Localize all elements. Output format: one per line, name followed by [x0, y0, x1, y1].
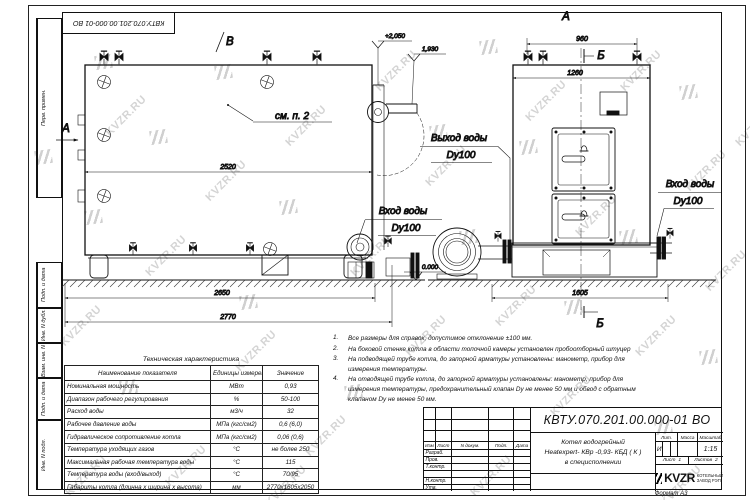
format-value: А3 — [680, 491, 687, 497]
row-label-razrab: Разраб. — [424, 450, 452, 456]
kvzr-logo-icon — [656, 473, 662, 484]
table-row: Диапазон рабочего регулирования%50-100 — [65, 393, 319, 406]
col-header-podp: Подп. — [489, 442, 514, 449]
row-unit: °С — [211, 456, 263, 469]
note-number: 4. — [333, 375, 348, 404]
table-row: Расход водым3/ч32 — [65, 406, 319, 419]
company-name-line2: ЗАВОД РЭП — [697, 478, 721, 483]
company-name-line1: КОТЕЛЬНЫЙ — [697, 473, 723, 478]
product-name-line3: в специсполнении — [565, 458, 622, 468]
tech-table-title: Техническая характеристика — [64, 356, 318, 363]
row-label-blank — [424, 471, 452, 477]
row-value: 70/95 — [263, 469, 319, 482]
title-block-empty-cell — [531, 473, 656, 491]
corner-stamp: КВТУ.070.201.00.000-01 ВО — [62, 12, 175, 34]
row-name: Габариты котла (длинна х ширина х высота… — [65, 481, 211, 494]
title-block-doc-number: КВТУ.070.201.00.000-01 ВО — [531, 408, 723, 433]
row-unit: м3/ч — [211, 406, 263, 419]
row-value: не более 250 — [263, 443, 319, 456]
row-value: 50-100 — [263, 393, 319, 406]
row-value: 2770х1605х2050 — [263, 481, 319, 494]
row-unit: мм — [211, 481, 263, 494]
sheet-value: 1 — [678, 458, 681, 463]
margin-box-podp-data-2: Подп. и дата — [36, 378, 62, 420]
sheets-value: 2 — [715, 458, 718, 463]
company-name: КОТЕЛЬНЫЙ ЗАВОД РЭП — [697, 473, 723, 484]
margin-label-perv-primen: Перв. примен. — [37, 19, 50, 197]
product-name-line2: Heatexpert- КВр -0,93- КБД ( К ) — [545, 448, 642, 458]
margin-box-vzam-inv: Взам. инв. N — [36, 343, 62, 378]
product-name: Котел водогрейный Heatexpert- КВр -0,93-… — [531, 433, 656, 473]
col-header-docnum: N докум. — [452, 442, 490, 449]
title-block-left: Изм Лист N докум. Подп. Дата Разраб. Про… — [424, 408, 531, 491]
row-name: Диапазон рабочего регулирования — [65, 393, 211, 406]
table-row: Гидравлическое сопротивление котлаМПа (к… — [65, 431, 319, 444]
row-name: Температура воды (вход/выход) — [65, 469, 211, 482]
notes-list: 1.Все размеры для справок, допустимое от… — [333, 334, 638, 405]
margin-label-vzam-inv: Взам. инв. N — [37, 344, 50, 377]
scale-value: 1:15 — [698, 442, 723, 456]
row-label-prov: Пров. — [424, 457, 452, 463]
sheet-label: Лист — [663, 458, 676, 463]
row-value: 32 — [263, 406, 319, 419]
sheet-info: Лист1 Листов2 — [656, 456, 723, 464]
tech-table: Наименование показателя Единицы измерени… — [64, 365, 319, 494]
row-unit: % — [211, 393, 263, 406]
title-block: Изм Лист N докум. Подп. Дата Разраб. Про… — [423, 407, 722, 490]
note-item: 3.На подводящей трубе котла, до запорной… — [333, 355, 638, 374]
row-unit: °С — [211, 469, 263, 482]
col-header-list: Лист — [436, 442, 452, 449]
lit-value: И — [656, 442, 663, 456]
tech-header-name: Наименование показателя — [65, 366, 211, 381]
margin-box-perv-primen: Перв. примен. — [36, 18, 62, 198]
margin-box-inv-dubl: Инв. N дубл. — [36, 308, 62, 343]
margin-label-inv-podl: Инв. N подл. — [37, 421, 50, 489]
kvzr-logo-text: KVZR — [664, 471, 695, 485]
row-value: 0,06 (0,6) — [263, 431, 319, 444]
row-value: 0,6 (6,0) — [263, 418, 319, 431]
margin-label-podp-data-2: Подп. и дата — [37, 379, 50, 419]
row-name: Гидравлическое сопротивление котла — [65, 431, 211, 444]
row-unit: МПа (кгс/см2) — [211, 431, 263, 444]
row-unit: МВт — [211, 381, 263, 394]
row-label-nkontr: Н.контр. — [424, 478, 452, 484]
note-item: 2.На боковой стенке котла в области топо… — [333, 345, 638, 355]
company-logo: KVZR КОТЕЛЬНЫЙ ЗАВОД РЭП — [656, 464, 723, 491]
row-unit: МПа (кгс/см2) — [211, 418, 263, 431]
lit-header: Лит. — [656, 433, 678, 441]
tech-header-value: Значение — [263, 366, 319, 381]
tech-header-unit: Единицы измерения — [211, 366, 263, 381]
note-text: На подводящей трубе котла, до запорной а… — [348, 355, 638, 374]
lit-mass-scale-headers: Лит. Масса Масштаб — [656, 433, 723, 441]
table-row: Рабочее давление водыМПа (кгс/см2)0,6 (6… — [65, 418, 319, 431]
product-name-line1: Котел водогрейный — [561, 438, 625, 448]
tech-characteristics: Техническая характеристика Наименование … — [64, 356, 318, 494]
row-label-tkontr: Т.контр. — [424, 464, 452, 470]
margin-box-podp-data-1: Подп. и дата — [36, 262, 62, 308]
corner-stamp-doc-number: КВТУ.070.201.00.000-01 ВО — [73, 19, 165, 28]
row-name: Температура уходящих газов — [65, 443, 211, 456]
note-text: Все размеры для справок, допустимое откл… — [348, 334, 638, 344]
row-name: Расход воды — [65, 406, 211, 419]
mass-header: Масса — [678, 433, 698, 441]
row-value: 115 — [263, 456, 319, 469]
row-name: Номинальная мощность — [65, 381, 211, 394]
scale-header: Масштаб — [698, 433, 723, 441]
row-name: Максимальная рабочая температура воды — [65, 456, 211, 469]
row-unit: °С — [211, 443, 263, 456]
format-label: Формат — [655, 491, 679, 497]
row-name: Рабочее давление воды — [65, 418, 211, 431]
mass-value — [678, 442, 698, 456]
table-row: Габариты котла (длинна х ширина х высота… — [65, 481, 319, 494]
format-note: Формат А3 — [620, 491, 722, 497]
col-header-data: Дата — [514, 442, 530, 449]
note-number: 3. — [333, 355, 348, 374]
note-number: 2. — [333, 345, 348, 355]
table-row: Температура воды (вход/выход)°С70/95 — [65, 469, 319, 482]
lit-mass-scale-values: И 1:15 — [656, 441, 723, 456]
note-text: На боковой стенке котла в области топочн… — [348, 345, 638, 355]
margin-label-podp-data-1: Подп. и дата — [37, 263, 50, 307]
drawing-sheet: KVZR.RUKVZR.RUKVZR.RUKVZR.RUKVZR.RUKVZR.… — [0, 0, 750, 500]
note-text: На отводящей трубе котла, до запорной ар… — [348, 375, 638, 404]
row-value: 0,93 — [263, 381, 319, 394]
margin-label-inv-dubl: Инв. N дубл. — [37, 309, 50, 342]
note-item: 4.На отводящей трубе котла, до запорной … — [333, 375, 638, 404]
table-row: Температура уходящих газов°Сне более 250 — [65, 443, 319, 456]
row-label-utv: Утв. — [424, 485, 452, 491]
col-header-izm: Изм — [424, 442, 436, 449]
note-item: 1.Все размеры для справок, допустимое от… — [333, 334, 638, 344]
table-row: Максимальная рабочая температура воды°С1… — [65, 456, 319, 469]
sheets-label: Листов — [694, 458, 712, 463]
note-number: 1. — [333, 334, 348, 344]
table-row: Номинальная мощностьМВт0,93 — [65, 381, 319, 394]
margin-box-inv-podl: Инв. N подл. — [36, 420, 62, 490]
